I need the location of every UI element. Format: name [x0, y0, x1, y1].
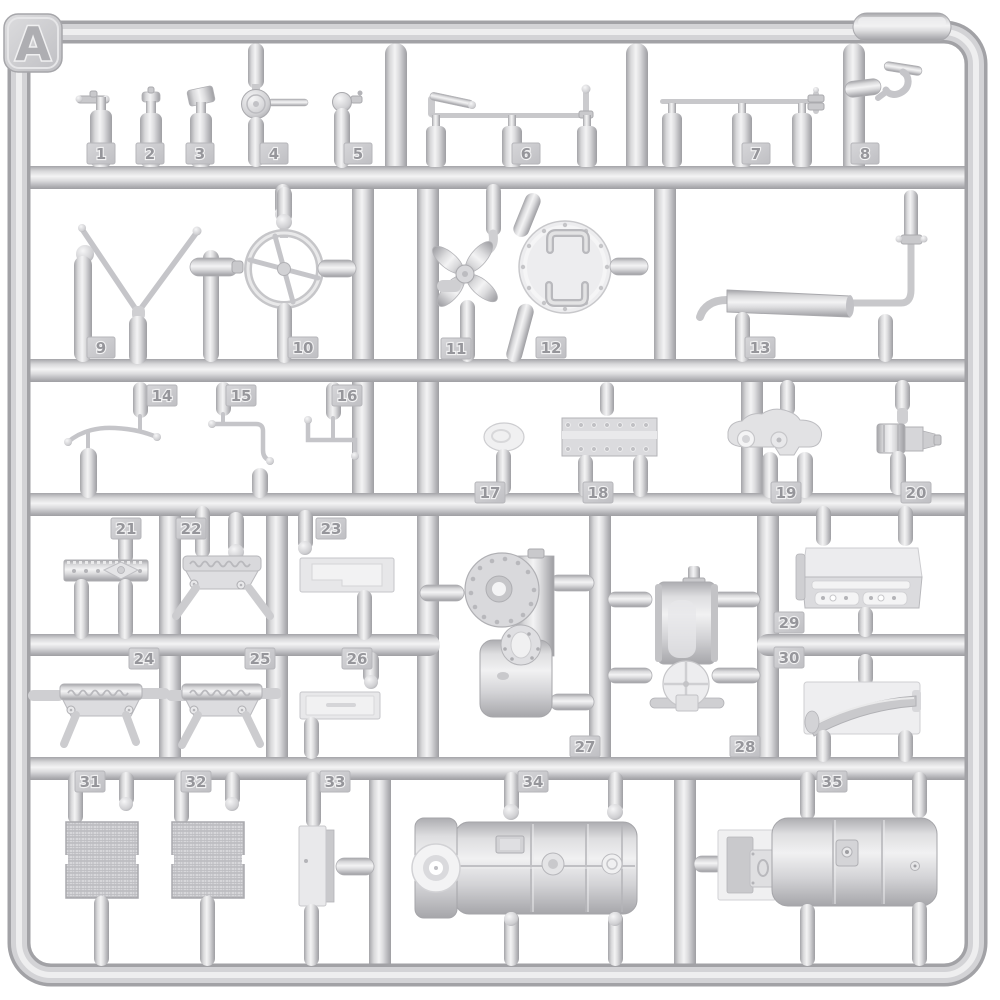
part-tag-1: 1 [87, 143, 115, 164]
gate-part4 [248, 43, 264, 89]
part-number: 31 [80, 773, 101, 791]
runner-tab [853, 13, 951, 41]
part-number: 22 [181, 520, 202, 538]
part-number: 25 [250, 650, 271, 668]
part-number: 28 [735, 738, 756, 756]
part-tag-3: 3 [186, 143, 214, 164]
part-tag-5: 5 [344, 143, 372, 164]
part-number: 20 [906, 484, 927, 502]
part-number: 26 [347, 650, 368, 668]
part-tag-16: 16 [332, 385, 362, 406]
part-number: 7 [751, 145, 761, 163]
part-tag-22: 22 [176, 518, 206, 539]
part-tag-21: 21 [111, 518, 141, 539]
part-tag-19: 19 [771, 482, 801, 503]
part-number: 35 [822, 773, 843, 791]
part-tag-17: 17 [475, 482, 505, 503]
part-tag-31: 31 [75, 771, 105, 792]
part-tag-18: 18 [583, 482, 613, 503]
part-number: 3 [195, 145, 205, 163]
sprue-canvas: A [0, 0, 1000, 1000]
part-tag-20: 20 [901, 482, 931, 503]
part-number: 2 [145, 145, 155, 163]
part-number: 14 [152, 387, 173, 405]
part-number: 23 [321, 520, 342, 538]
part-number: 34 [523, 773, 544, 791]
part-tag-23: 23 [316, 518, 346, 539]
part-tag-14: 14 [147, 385, 177, 406]
part-number: 32 [186, 773, 207, 791]
part-number: 17 [480, 484, 501, 502]
part-number: 4 [269, 145, 279, 163]
part-tag-8: 8 [851, 143, 879, 164]
part-tag-4: 4 [260, 143, 288, 164]
part-number: 29 [779, 614, 800, 632]
part-number: 8 [860, 145, 870, 163]
part-number: 9 [96, 339, 106, 357]
part-tag-35: 35 [817, 771, 847, 792]
sprue-letter: A [15, 17, 51, 71]
part-tag-11: 11 [441, 338, 471, 359]
part-tag-13: 13 [745, 337, 775, 358]
part-tag-7: 7 [742, 143, 770, 164]
part-number: 11 [446, 340, 467, 358]
part-tag-26: 26 [342, 648, 372, 669]
part-tag-28: 28 [730, 736, 760, 757]
part-tag-30: 30 [774, 647, 804, 668]
part-tag-6: 6 [512, 143, 540, 164]
part-tag-32: 32 [181, 771, 211, 792]
part-number: 10 [293, 339, 314, 357]
part-number: 18 [588, 484, 609, 502]
part-number: 16 [337, 387, 358, 405]
part-number: 24 [134, 650, 155, 668]
part-tag-12: 12 [536, 337, 566, 358]
part-tag-24: 24 [129, 648, 159, 669]
part-tag-9: 9 [87, 337, 115, 358]
part-number: 27 [575, 738, 596, 756]
part-number: 13 [750, 339, 771, 357]
part-tag-33: 33 [320, 771, 350, 792]
part-number: 19 [776, 484, 797, 502]
part-tag-15: 15 [226, 385, 256, 406]
part-tag-10: 10 [288, 337, 318, 358]
part-tag-34: 34 [518, 771, 548, 792]
part-number: 1 [96, 145, 106, 163]
sprue-letter-badge: A [4, 14, 62, 72]
part-number: 15 [231, 387, 252, 405]
part-number: 33 [325, 773, 346, 791]
part-number: 6 [521, 145, 531, 163]
part-tag-29: 29 [774, 612, 804, 633]
part-tag-25: 25 [245, 648, 275, 669]
part-number: 12 [541, 339, 562, 357]
part-tag-27: 27 [570, 736, 600, 757]
part-number: 30 [779, 649, 800, 667]
model-kit-sprue-photo: A [0, 0, 1000, 1000]
part-tag-2: 2 [136, 143, 164, 164]
part-number: 21 [116, 520, 137, 538]
part-number: 5 [353, 145, 363, 163]
